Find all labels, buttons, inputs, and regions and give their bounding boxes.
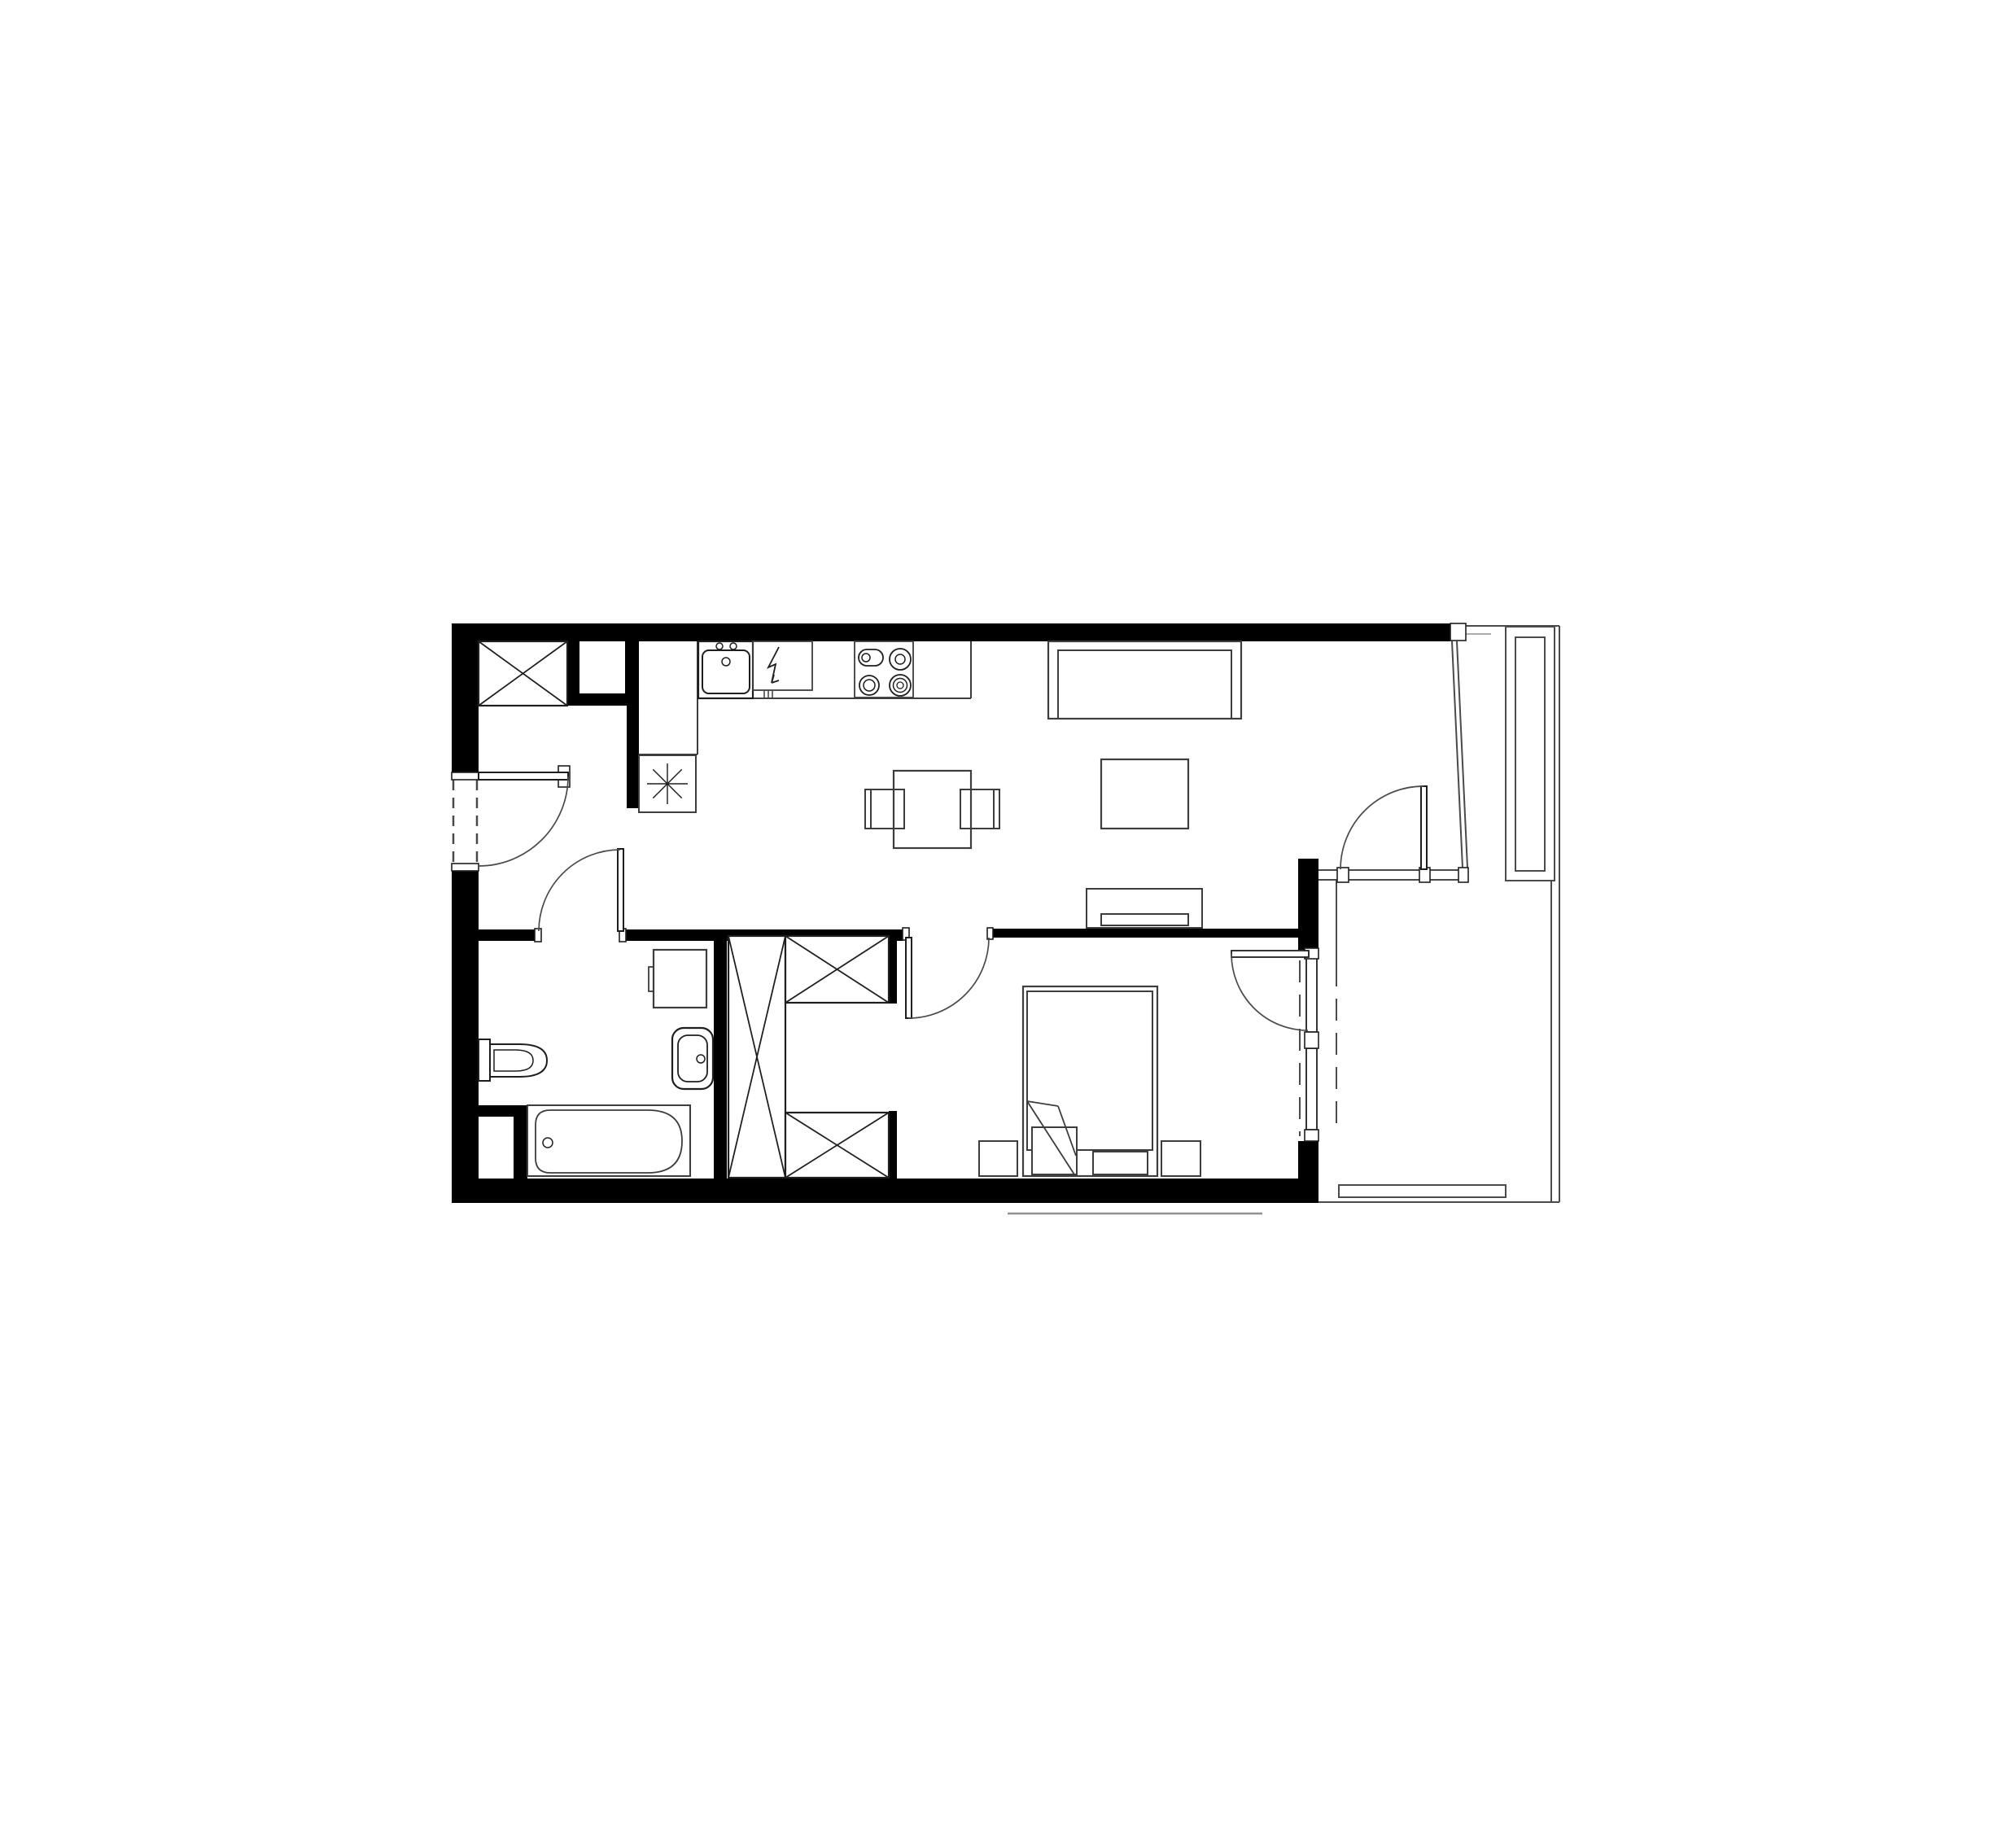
closet-stub-bottom bbox=[889, 1111, 897, 1179]
balcony-door-frame-left bbox=[1337, 868, 1349, 882]
burner-tr-inner bbox=[895, 654, 905, 664]
toilet-bowl bbox=[490, 1044, 547, 1077]
burner-br-mid bbox=[894, 679, 907, 693]
dishwasher-symbol bbox=[768, 647, 779, 683]
bedroom-door-swing bbox=[908, 938, 989, 1018]
bathroom-wall-top-left bbox=[478, 929, 537, 941]
shaft-wall-bottom bbox=[567, 693, 639, 706]
floorplan-svg bbox=[0, 0, 2016, 1828]
bedroom-door-cap-right bbox=[987, 928, 993, 939]
living-balcony-door-leaf bbox=[1421, 786, 1427, 869]
bed-mattress bbox=[1027, 991, 1152, 1150]
bathroom-wall-right bbox=[714, 941, 727, 1179]
bathtub-drain bbox=[543, 1138, 553, 1148]
toilet-tank bbox=[479, 1039, 490, 1081]
pillar-bedroom bbox=[1298, 1141, 1318, 1179]
bedroom-window-glazing-lower bbox=[1306, 1048, 1317, 1130]
entry-door-leaf bbox=[479, 772, 568, 780]
balcony-planter-horizontal bbox=[1339, 1185, 1506, 1197]
bedroom-door-leaf bbox=[906, 938, 912, 1018]
tv-screen bbox=[1101, 914, 1188, 925]
wardrobe-tall bbox=[728, 936, 785, 1178]
sofa-outer bbox=[1048, 641, 1241, 719]
bedroom-balcony-door-swing bbox=[1231, 954, 1308, 1030]
bath-door-cap-left bbox=[535, 929, 541, 942]
burner-bl-inner bbox=[864, 680, 875, 691]
dishwasher-module bbox=[753, 641, 812, 690]
duct-shaft bbox=[479, 641, 567, 706]
pillar-living bbox=[1298, 859, 1318, 950]
bathroom-door-leaf bbox=[618, 849, 623, 931]
wardrobe-bottom bbox=[785, 1113, 889, 1178]
wall-bottom bbox=[452, 1179, 1318, 1203]
burner-tr-outer bbox=[890, 649, 911, 670]
tv-cabinet bbox=[1087, 889, 1202, 928]
nightstand-right bbox=[1161, 1141, 1200, 1176]
sink-tap-dot-1 bbox=[716, 643, 723, 649]
sink-tap-dot-2 bbox=[730, 643, 737, 649]
dining-table bbox=[894, 771, 971, 848]
wall-top bbox=[452, 623, 1450, 641]
bathroom-door-swing bbox=[539, 850, 620, 931]
window-frame-top-right bbox=[1450, 623, 1466, 641]
bathtub-inner bbox=[536, 1110, 682, 1173]
entry-door-swing bbox=[479, 776, 568, 866]
wall-left-lower bbox=[452, 871, 479, 1203]
bed-pillow-right bbox=[1093, 1152, 1148, 1174]
nightstand-left bbox=[979, 1141, 1017, 1176]
living-glazing-line-inner bbox=[1457, 641, 1467, 868]
burner-bl-outer bbox=[859, 676, 879, 695]
entry-threshold-top bbox=[452, 772, 479, 780]
burner-br-inner bbox=[897, 682, 903, 689]
floorplan-page bbox=[0, 0, 2016, 1828]
bedroom-balcony-door-leaf bbox=[1231, 951, 1309, 957]
bedroom-window-frame-bottom bbox=[1305, 1130, 1318, 1141]
bedroom-window-glazing-upper bbox=[1306, 958, 1317, 1032]
bedroom-window-frame-mid bbox=[1305, 1032, 1318, 1048]
coffee-table bbox=[1101, 759, 1188, 829]
kitchen-wall-stub bbox=[627, 706, 639, 808]
glazing-corner-frame bbox=[1458, 868, 1468, 882]
balcony-planter-vertical bbox=[1506, 627, 1555, 881]
bathroom-duct-wall-right bbox=[514, 1117, 527, 1179]
burner-oval-dot bbox=[862, 654, 870, 662]
bathroom-duct-wall-top bbox=[478, 1105, 527, 1117]
bedroom-wall-top bbox=[991, 929, 1298, 938]
sofa-seat bbox=[1058, 650, 1231, 719]
shaft-wall-right bbox=[625, 623, 639, 706]
wall-left-upper bbox=[452, 623, 479, 772]
wardrobe-top bbox=[785, 936, 889, 1003]
living-balcony-door-swing bbox=[1340, 786, 1423, 869]
living-glazing-line-outer bbox=[1452, 641, 1463, 868]
washing-machine bbox=[654, 950, 706, 1008]
closet-stub-top bbox=[889, 936, 897, 1004]
entry-threshold-bottom bbox=[452, 864, 479, 871]
boiler-symbol bbox=[647, 763, 688, 804]
